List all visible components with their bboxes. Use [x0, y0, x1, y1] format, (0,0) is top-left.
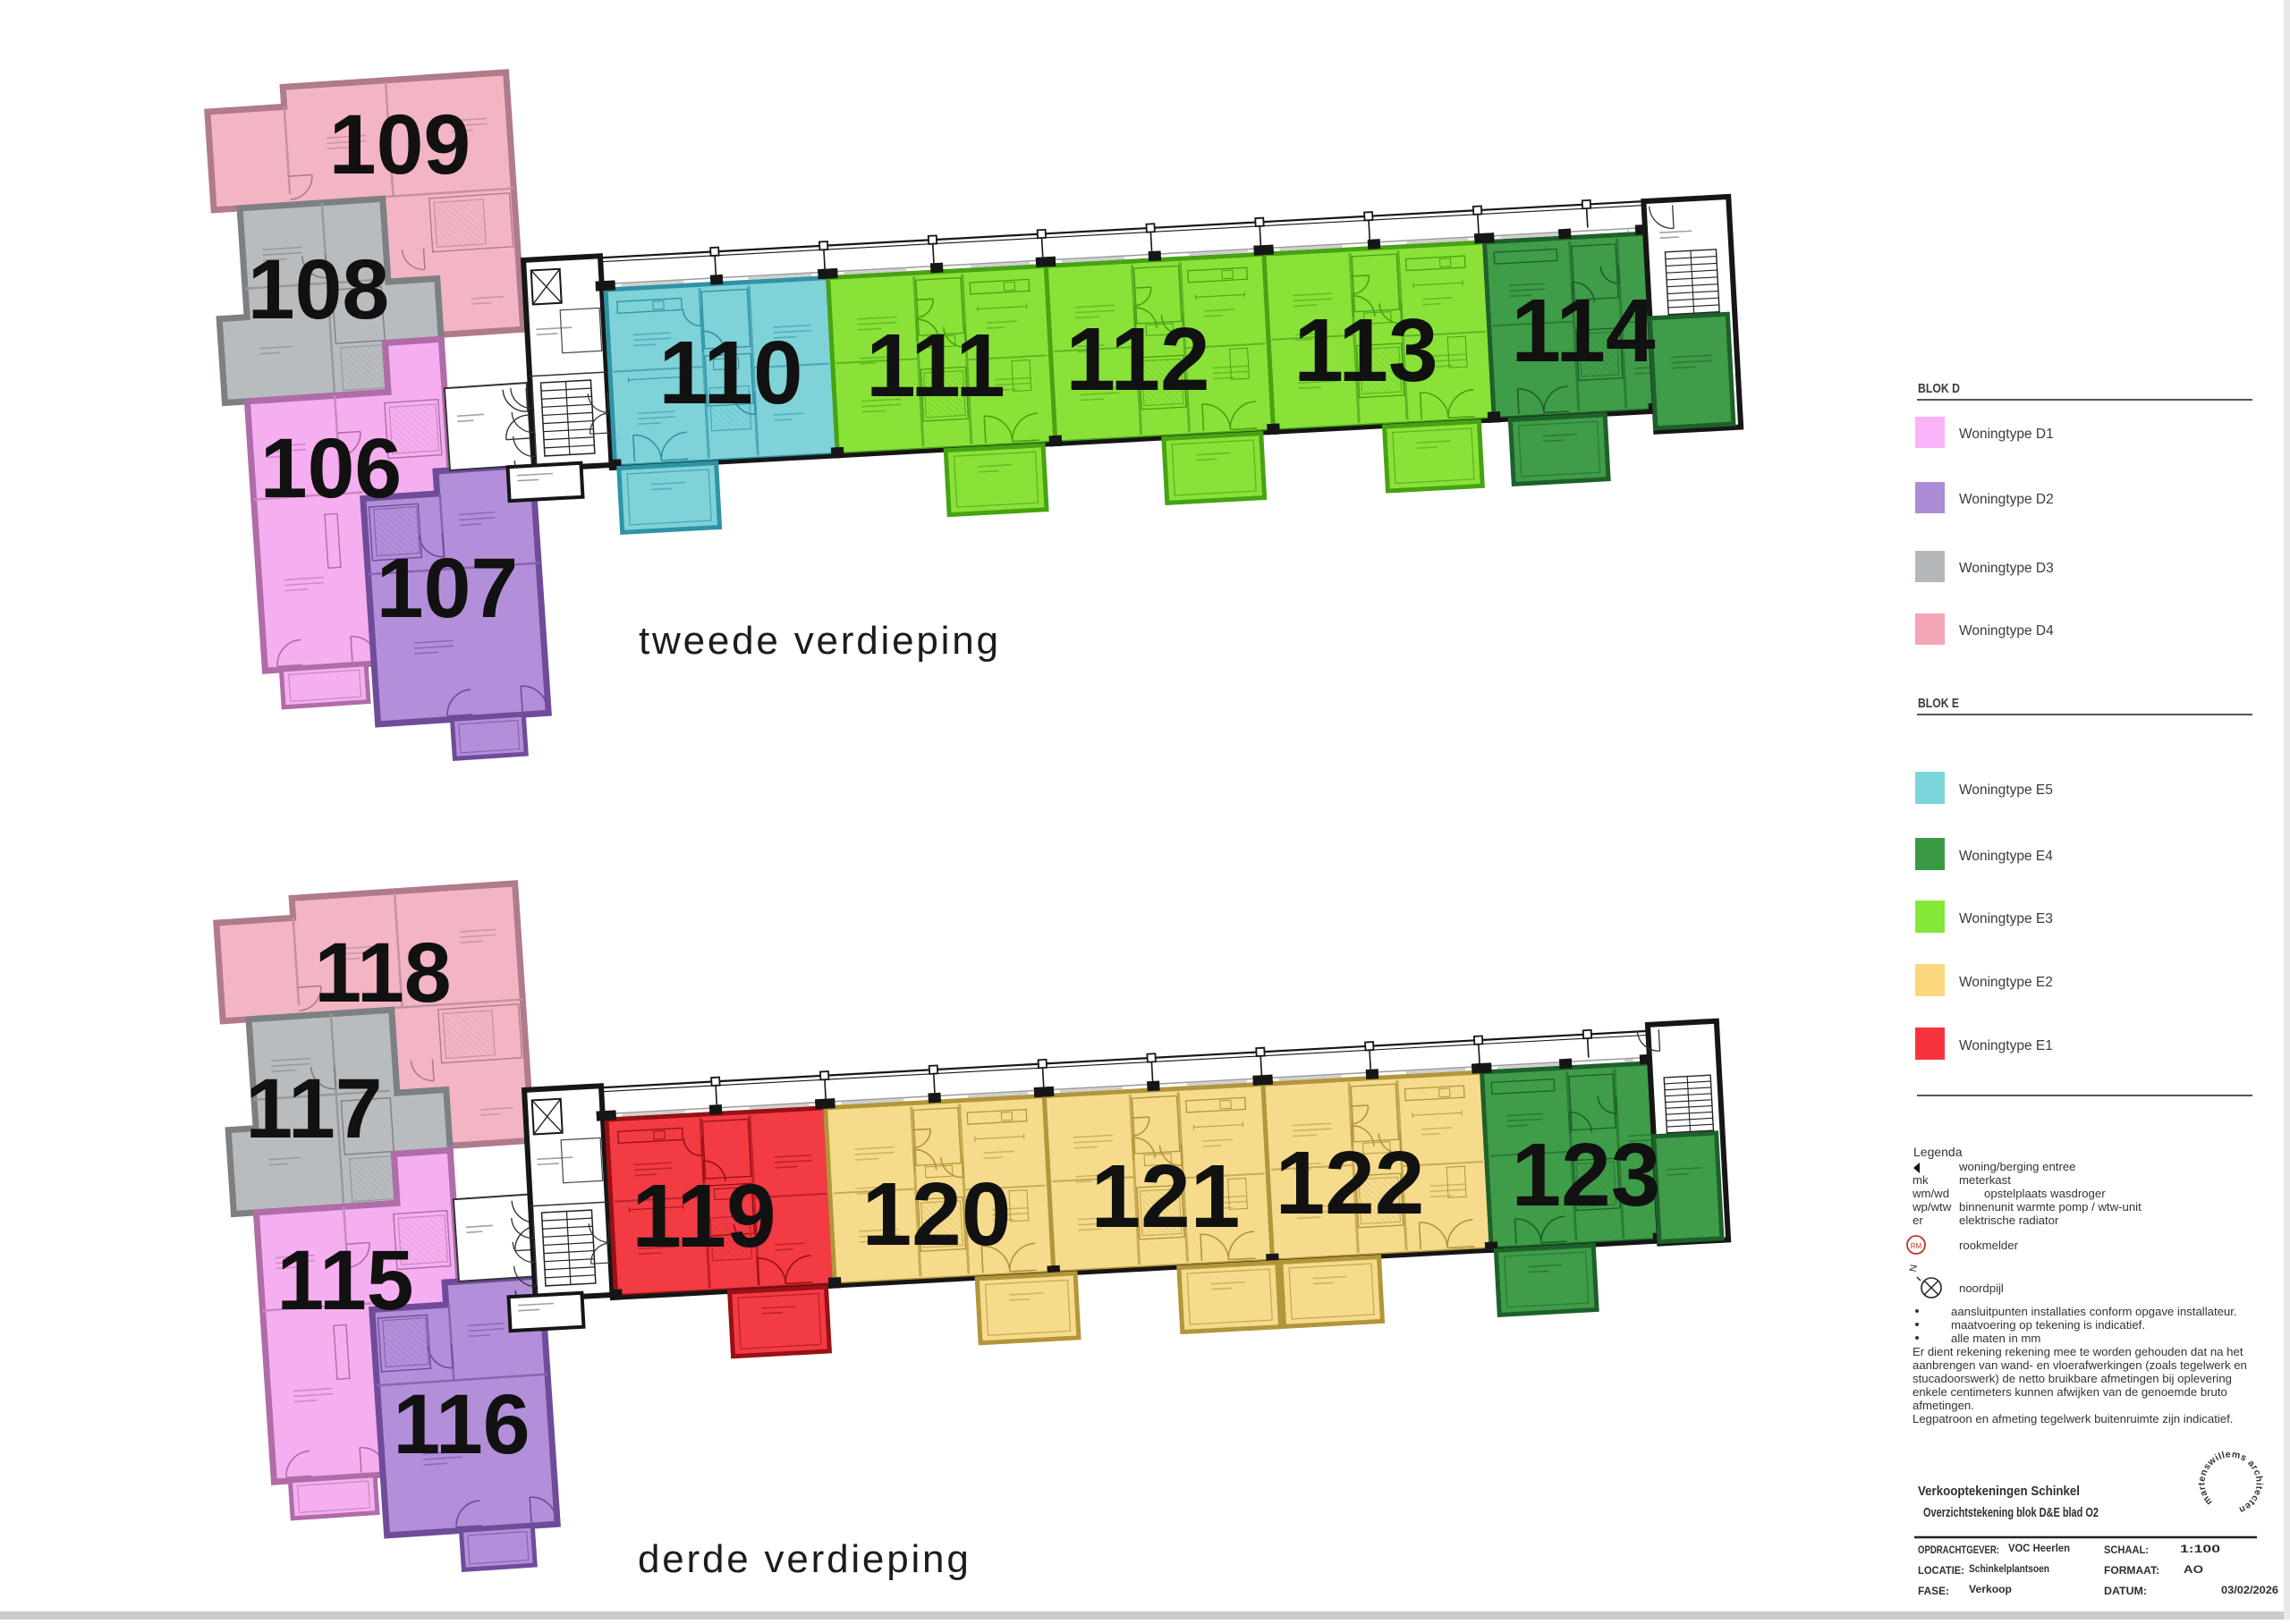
svg-text:VOC Heerlen: VOC Heerlen: [2008, 1542, 2070, 1554]
svg-text:enkele centimeters kunnen afwi: enkele centimeters kunnen afwijken van d…: [1913, 1385, 2227, 1399]
svg-text:120: 120: [862, 1164, 1012, 1265]
svg-text:1:100: 1:100: [2180, 1543, 2220, 1555]
svg-text:tweede verdieping: tweede verdieping: [639, 619, 1001, 663]
svg-text:117: 117: [245, 1062, 382, 1156]
svg-text:LOCATIE:: LOCATIE:: [1918, 1564, 1964, 1577]
svg-text:woning/berging entree: woning/berging entree: [1958, 1160, 2076, 1173]
svg-text:RM: RM: [1911, 1242, 1922, 1250]
svg-text:Woningtype D3: Woningtype D3: [1959, 561, 2054, 576]
svg-text:opstelplaats wasdroger: opstelplaats wasdroger: [1984, 1187, 2106, 1200]
svg-text:mk: mk: [1913, 1173, 1929, 1187]
svg-text:binnenunit warmte pomp / wtw-u: binnenunit warmte pomp / wtw-unit: [1959, 1200, 2142, 1214]
svg-text:Legpatroon en afmeting tegelwe: Legpatroon en afmeting tegelwerk buitenr…: [1913, 1412, 2233, 1425]
svg-text:Woningtype D2: Woningtype D2: [1959, 492, 2054, 507]
svg-text:Schinkelplantsoen: Schinkelplantsoen: [1969, 1562, 2049, 1575]
svg-text:Woningtype D4: Woningtype D4: [1959, 623, 2054, 639]
svg-text:Woningtype E2: Woningtype E2: [1959, 975, 2053, 990]
svg-text:alle maten in mm: alle maten in mm: [1951, 1332, 2040, 1345]
svg-text:afmetingen.: afmetingen.: [1913, 1399, 1974, 1412]
svg-text:108: 108: [248, 242, 390, 337]
svg-text:Woningtype E3: Woningtype E3: [1959, 911, 2053, 926]
svg-text:107: 107: [377, 541, 519, 636]
svg-text:noordpijl: noordpijl: [1959, 1281, 2004, 1295]
svg-text:122: 122: [1276, 1133, 1425, 1233]
svg-text:rookmelder: rookmelder: [1959, 1239, 2019, 1252]
svg-text:114: 114: [1511, 281, 1656, 381]
svg-text:BLOK D: BLOK D: [1918, 381, 1960, 396]
svg-text:aanbrengen van wand- en vloera: aanbrengen van wand- en vloerafwerkingen…: [1913, 1358, 2247, 1372]
svg-text:109: 109: [329, 97, 471, 192]
svg-text:DATUM:: DATUM:: [2104, 1585, 2147, 1597]
svg-text:BLOK E: BLOK E: [1918, 696, 1959, 711]
svg-text:Verkoop: Verkoop: [1969, 1583, 2012, 1595]
svg-text:Verkooptekeningen Schinkel: Verkooptekeningen Schinkel: [1918, 1484, 2080, 1499]
svg-text:123: 123: [1512, 1125, 1661, 1225]
svg-text:118: 118: [314, 926, 451, 1020]
svg-text:Woningtype D1: Woningtype D1: [1959, 427, 2054, 442]
svg-text:maatvoering op tekening is ind: maatvoering op tekening is indicatief.: [1951, 1318, 2145, 1332]
svg-text:meterkast: meterkast: [1959, 1173, 2011, 1187]
svg-text:wm/wd: wm/wd: [1912, 1187, 1949, 1200]
svg-text:112: 112: [1065, 309, 1209, 410]
svg-text:03/02/2026: 03/02/2026: [2221, 1584, 2278, 1596]
svg-text:er: er: [1913, 1214, 1923, 1227]
svg-text:wp/wtw: wp/wtw: [1912, 1200, 1952, 1214]
svg-text:106: 106: [260, 421, 403, 516]
svg-text:119: 119: [632, 1166, 776, 1266]
svg-text:aansluitpunten installaties co: aansluitpunten installaties conform opga…: [1951, 1305, 2237, 1318]
svg-text:Woningtype E1: Woningtype E1: [1959, 1038, 2053, 1053]
svg-text:116: 116: [393, 1377, 530, 1472]
svg-text:Woningtype E5: Woningtype E5: [1959, 782, 2053, 798]
svg-text:derde verdieping: derde verdieping: [638, 1537, 971, 1581]
svg-text:Er dient rekening rekening mee: Er dient rekening rekening mee te worden…: [1913, 1345, 2243, 1358]
svg-text:Legenda: Legenda: [1913, 1145, 1963, 1159]
svg-text:113: 113: [1293, 300, 1438, 401]
svg-text:110: 110: [658, 323, 802, 423]
svg-text:OPDRACHTGEVER:: OPDRACHTGEVER:: [1918, 1544, 1999, 1556]
svg-text:stucadoorswerk) de netto bruik: stucadoorswerk) de netto bruikbare afmet…: [1913, 1372, 2232, 1385]
svg-text:111: 111: [866, 316, 1005, 416]
svg-text:Woningtype E4: Woningtype E4: [1959, 849, 2053, 864]
svg-text:FORMAAT:: FORMAAT:: [2104, 1564, 2159, 1577]
svg-text:115: 115: [276, 1233, 413, 1328]
svg-text:SCHAAL:: SCHAAL:: [2104, 1544, 2149, 1556]
svg-text:elektrische radiator: elektrische radiator: [1959, 1214, 2059, 1227]
svg-text:Overzichtstekening blok D&E bl: Overzichtstekening blok D&E blad O2: [1923, 1505, 2099, 1520]
svg-text:AO: AO: [2184, 1563, 2203, 1576]
svg-text:FASE:: FASE:: [1918, 1585, 1949, 1597]
svg-text:121: 121: [1091, 1146, 1241, 1247]
